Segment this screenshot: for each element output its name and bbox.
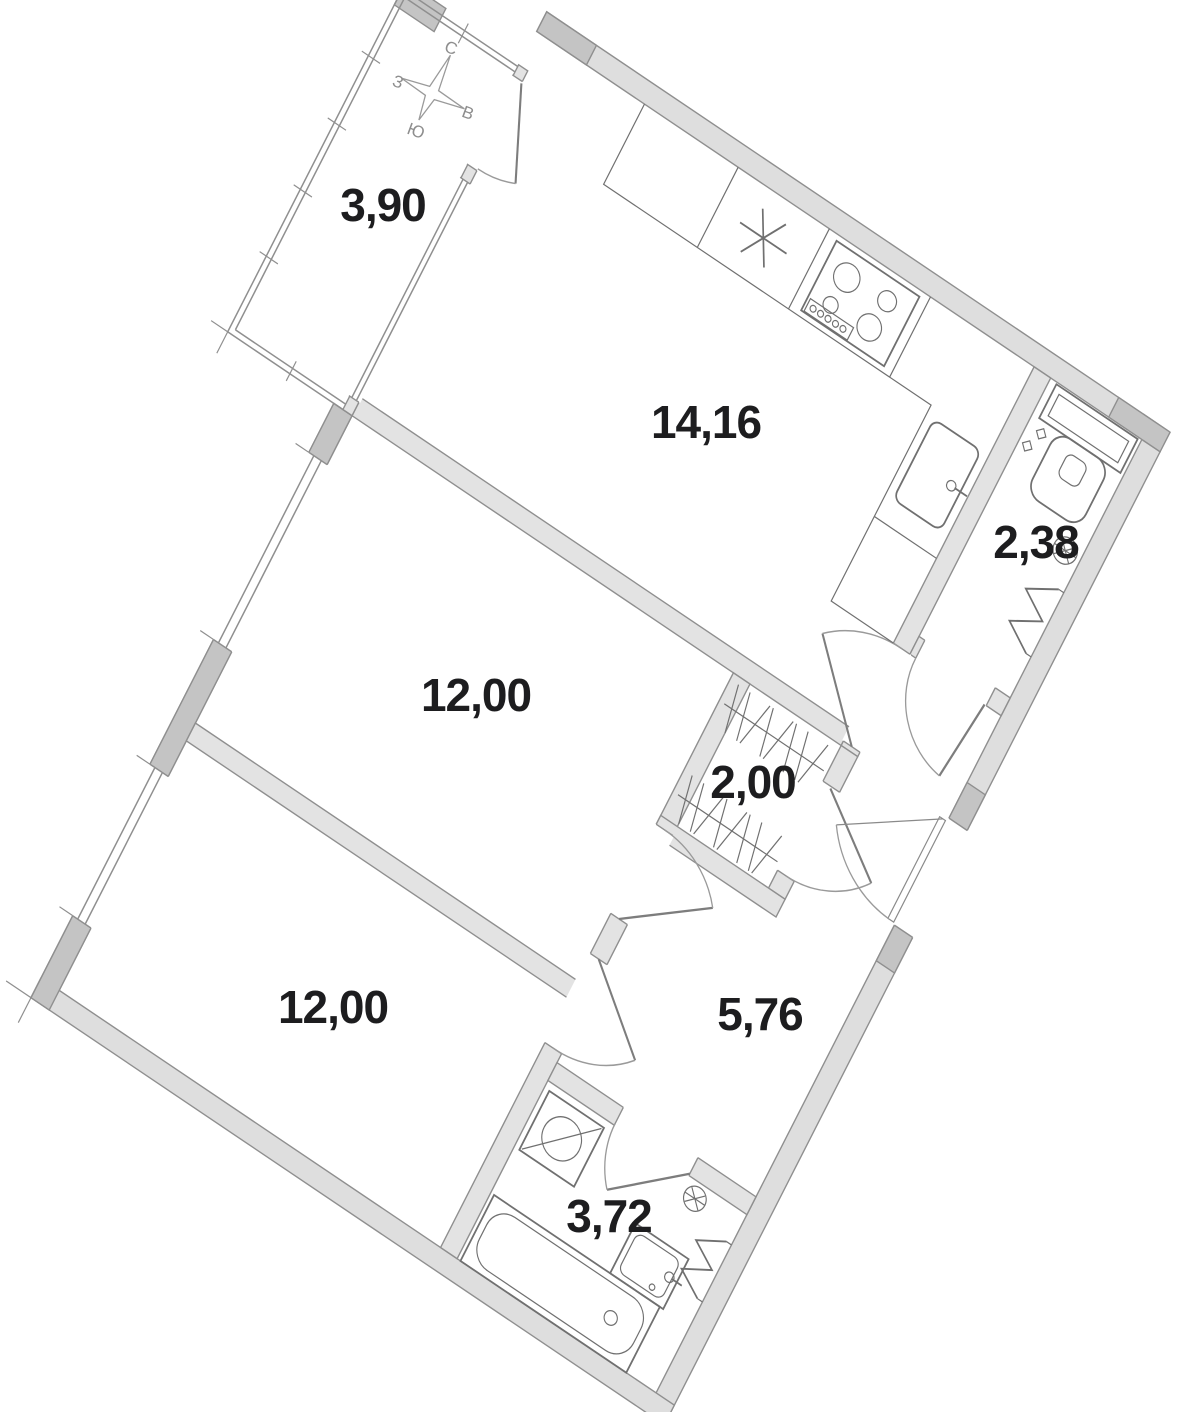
label-wardrobe-area: 2,00: [710, 756, 796, 808]
corner-tick: [6, 981, 31, 998]
label-room-bottom-area: 12,00: [278, 981, 388, 1033]
corner-tick: [18, 998, 31, 1023]
floor-plan: С З В Ю 3,90 14,16 2,38 12,00 2,00 12,00…: [0, 0, 1194, 1412]
label-room-middle-area: 12,00: [421, 669, 531, 721]
floor-plan-page: С З В Ю 3,90 14,16 2,38 12,00 2,00 12,00…: [0, 0, 1194, 1412]
label-bathroom-area: 3,72: [566, 1190, 652, 1242]
label-hallway-area: 5,76: [717, 988, 803, 1040]
label-balcony-area: 3,90: [340, 179, 426, 231]
label-wc-area: 2,38: [993, 516, 1079, 568]
label-kitchen-area: 14,16: [651, 396, 761, 448]
